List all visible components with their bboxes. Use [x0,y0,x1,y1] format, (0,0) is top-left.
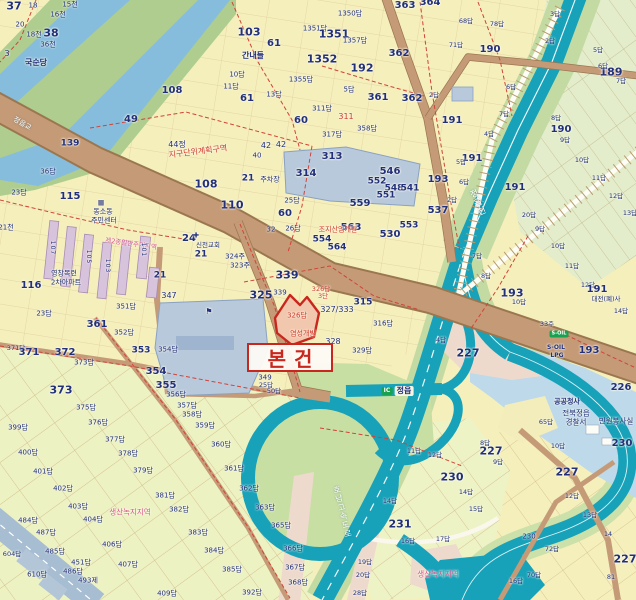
map-canvas [0,0,636,600]
ic-connector [346,389,442,391]
civil-office-building [602,438,612,445]
school-building [176,336,234,350]
police-building [586,425,599,434]
small-slate-block [452,87,473,101]
subject-annotation-box: 본건 [247,343,333,372]
cadastral-map[interactable]: 371815천16천3818천36천203국순당10849139정읍교23답36… [0,0,636,600]
